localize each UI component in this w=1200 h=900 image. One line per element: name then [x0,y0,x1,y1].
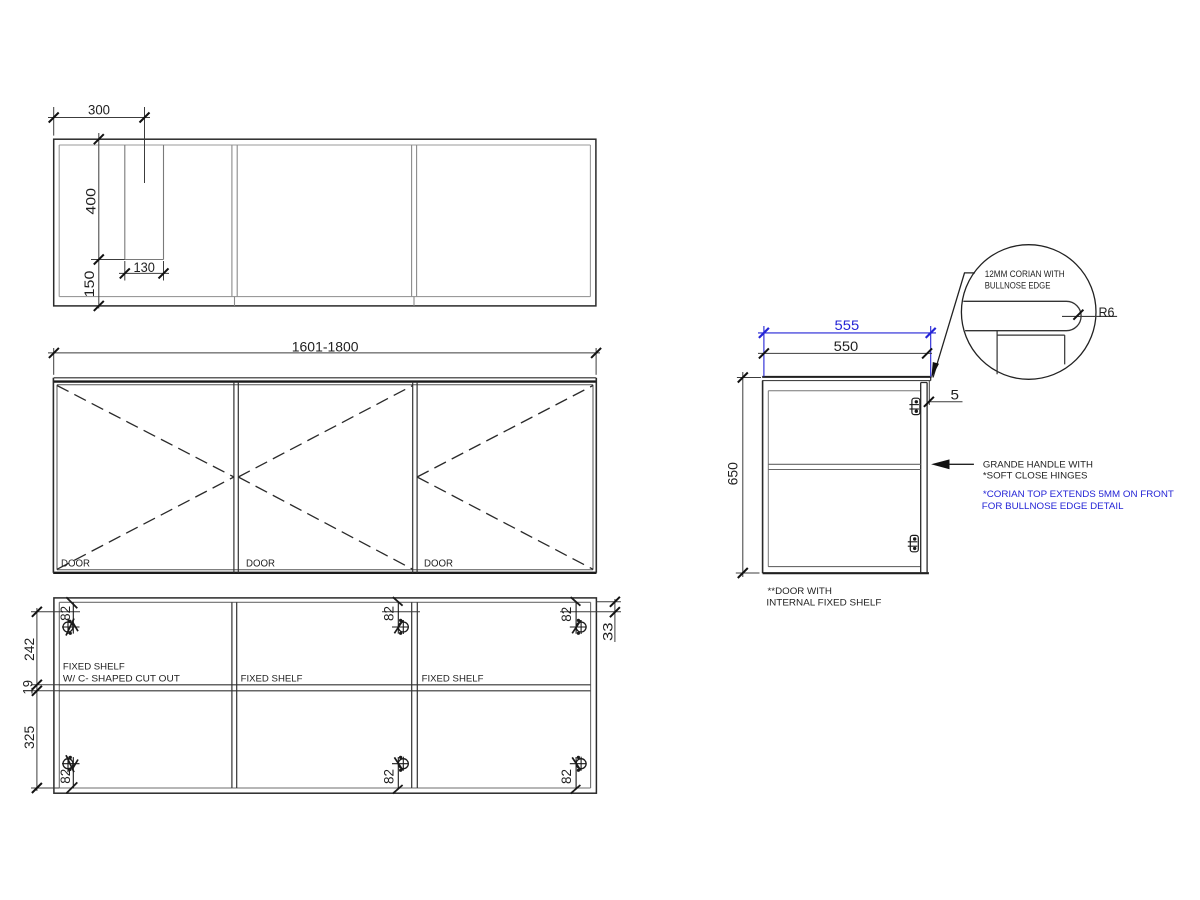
svg-text:R6: R6 [1099,304,1115,320]
svg-text:FIXED SHELF: FIXED SHELF [63,661,125,672]
svg-text:1601-1800: 1601-1800 [292,339,359,354]
svg-text:82: 82 [559,769,574,784]
svg-text:*CORIAN TOP EXTENDS 5MM ON FRO: *CORIAN TOP EXTENDS 5MM ON FRONT [983,489,1174,500]
svg-text:130: 130 [134,260,155,275]
svg-text:242: 242 [22,638,37,661]
svg-text:33: 33 [600,622,615,641]
svg-text:550: 550 [834,339,859,354]
svg-text:19: 19 [21,680,36,695]
svg-text:82: 82 [559,607,574,622]
svg-text:FOR BULLNOSE EDGE DETAIL: FOR BULLNOSE EDGE DETAIL [982,501,1124,512]
svg-text:650: 650 [725,462,740,485]
svg-text:555: 555 [835,318,860,333]
svg-text:W/ C- SHAPED CUT OUT: W/ C- SHAPED CUT OUT [63,673,180,684]
svg-text:INTERNAL FIXED SHELF: INTERNAL FIXED SHELF [766,597,881,608]
svg-text:FIXED SHELF: FIXED SHELF [241,673,303,684]
svg-text:82: 82 [382,769,397,784]
svg-text:82: 82 [382,606,397,621]
svg-text:DOOR: DOOR [61,558,90,569]
svg-text:DOOR: DOOR [424,558,453,569]
svg-text:*SOFT CLOSE HINGES: *SOFT CLOSE HINGES [983,470,1088,481]
svg-text:GRANDE HANDLE WITH: GRANDE HANDLE WITH [983,459,1093,470]
svg-text:400: 400 [83,188,98,215]
svg-text:82: 82 [58,606,73,621]
svg-text:150: 150 [82,271,97,298]
svg-text:12MM CORIAN WITH: 12MM CORIAN WITH [985,269,1065,280]
svg-text:300: 300 [88,103,110,118]
svg-text:5: 5 [951,387,960,402]
svg-text:BULLNOSE EDGE: BULLNOSE EDGE [985,281,1051,292]
svg-text:**DOOR WITH: **DOOR WITH [768,586,832,597]
svg-text:325: 325 [22,726,37,749]
svg-text:DOOR: DOOR [246,558,275,569]
svg-text:82: 82 [58,769,73,784]
svg-text:FIXED SHELF: FIXED SHELF [422,673,484,684]
